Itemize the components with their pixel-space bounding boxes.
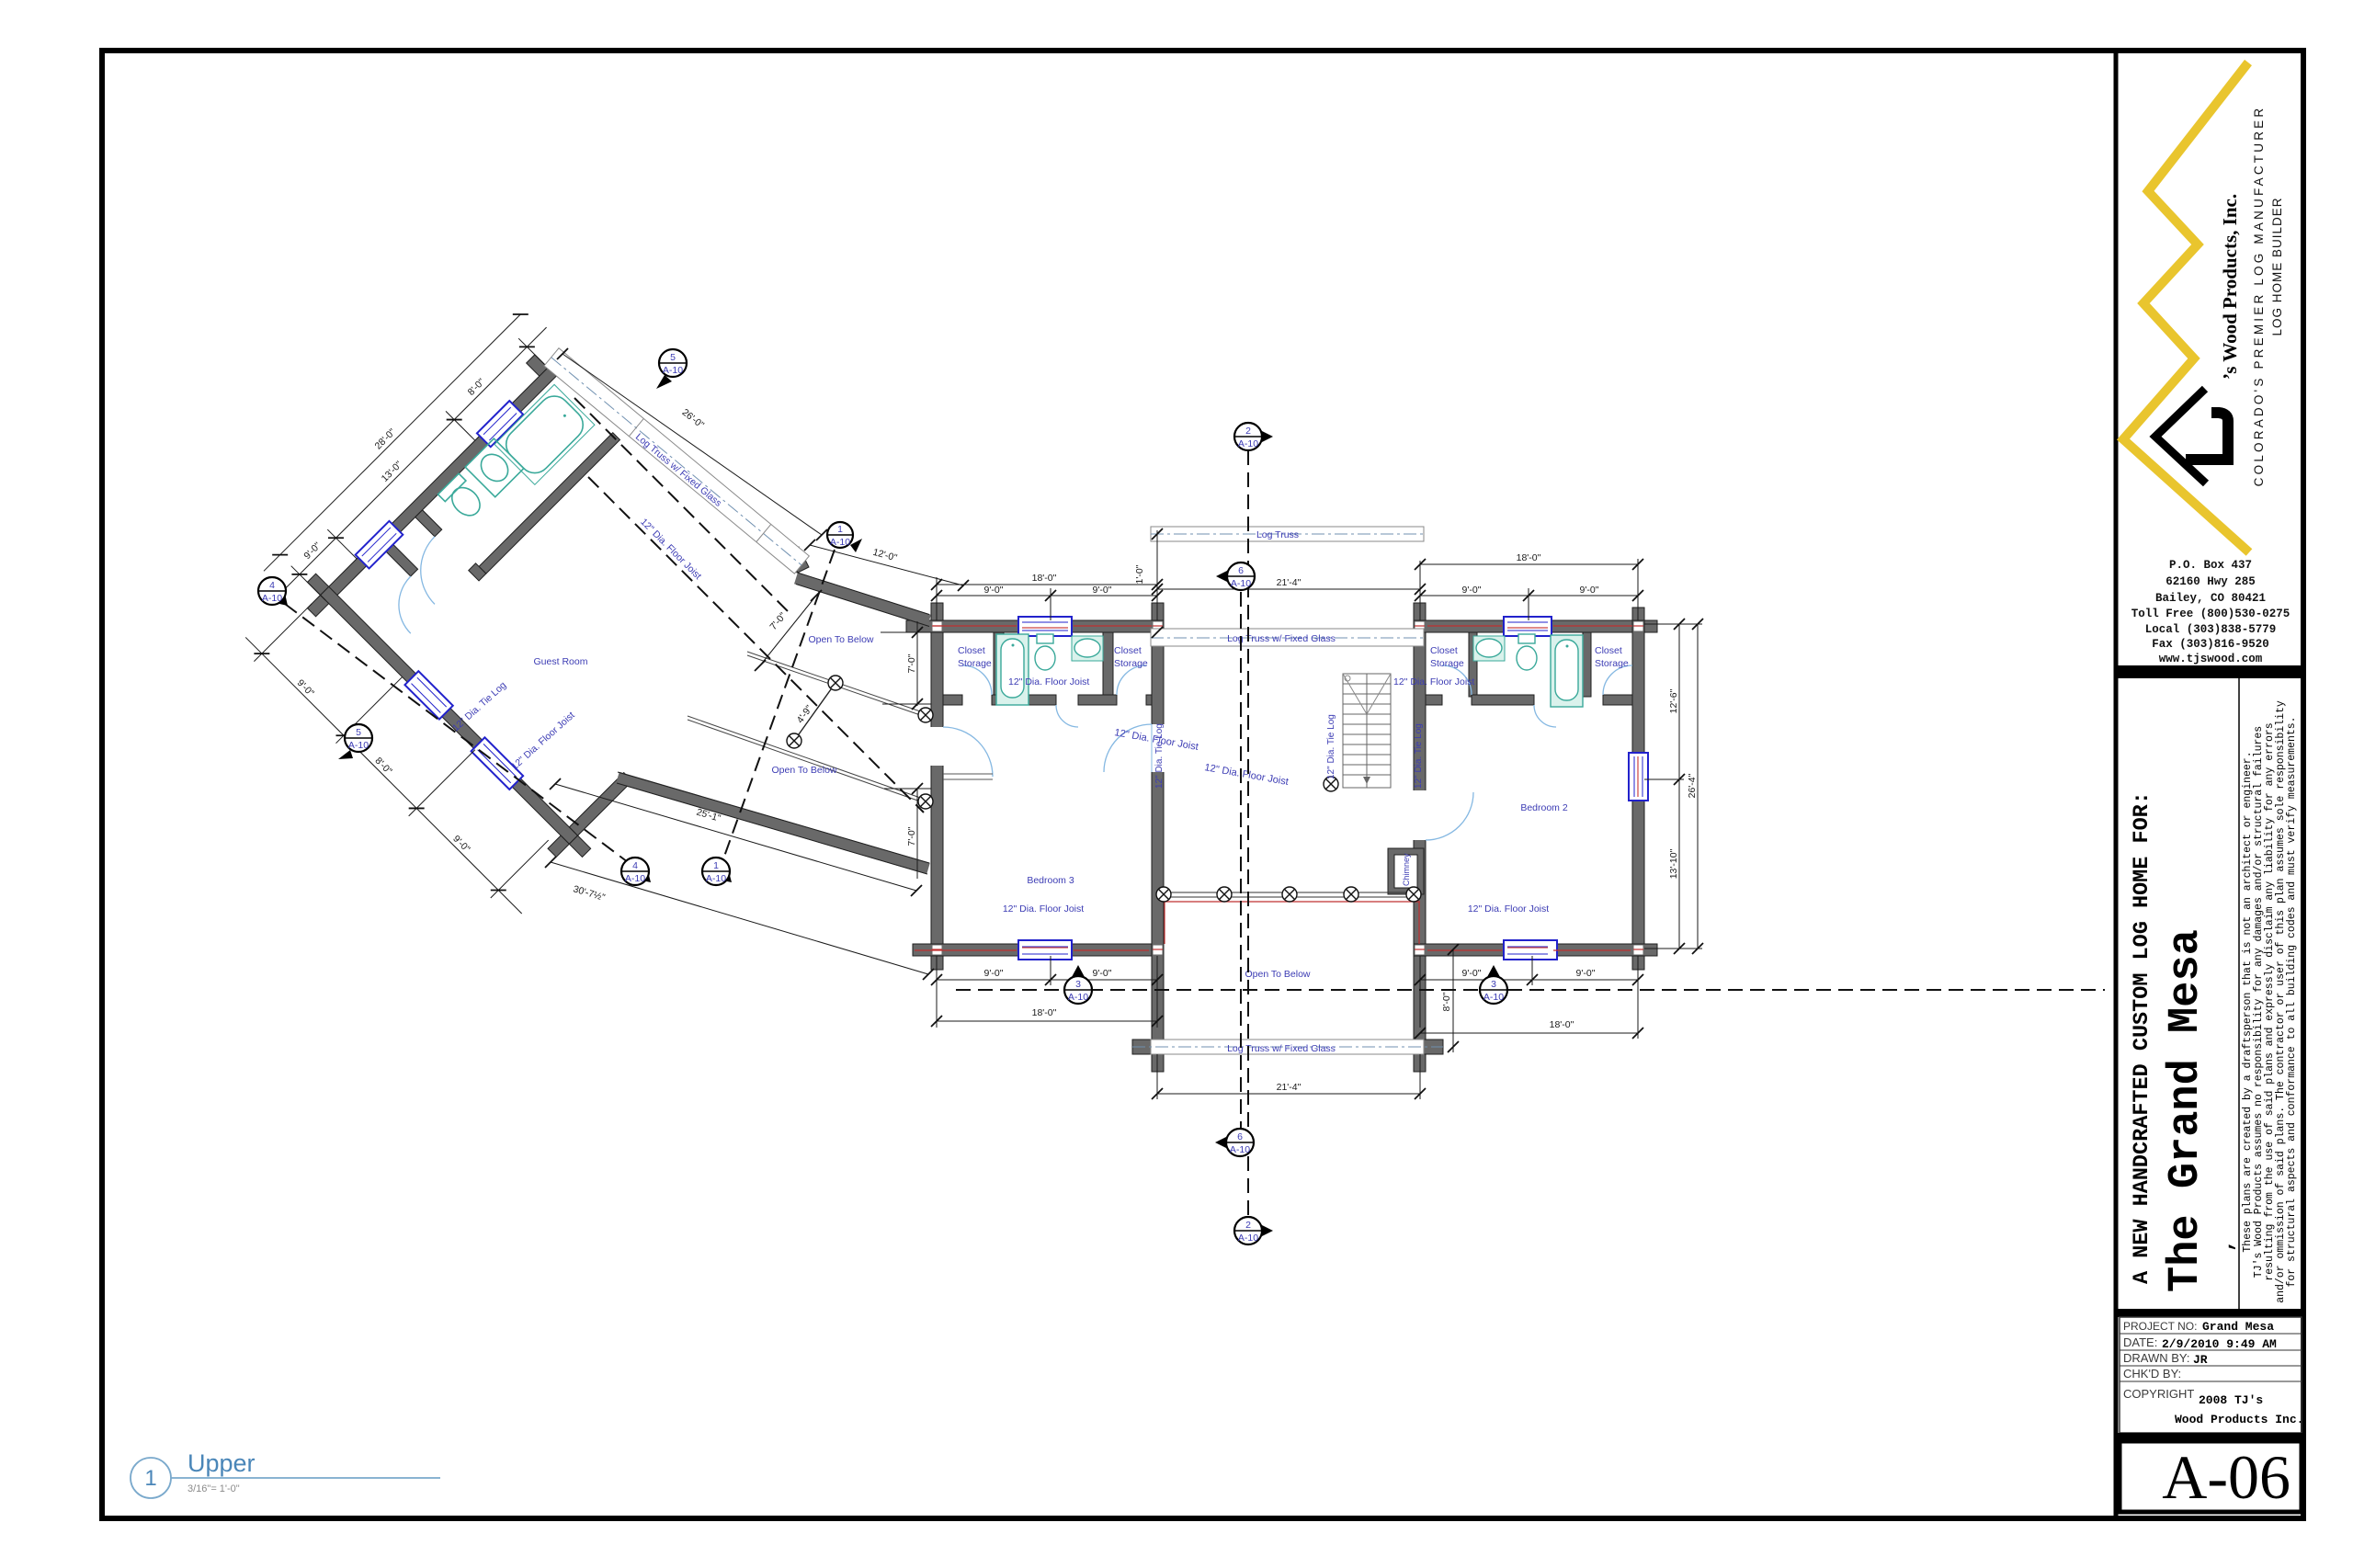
- svg-text:Bedroom 2: Bedroom 2: [1520, 802, 1568, 813]
- svg-text:2: 2: [1245, 426, 1251, 437]
- svg-text:,: ,: [2215, 1240, 2238, 1252]
- svg-text:2008 TJ's: 2008 TJ's: [2199, 1393, 2263, 1407]
- svg-text:PROJECT NO:: PROJECT NO:: [2123, 1320, 2197, 1333]
- svg-text:Open To Below: Open To Below: [808, 634, 873, 645]
- svg-text:Storage: Storage: [958, 658, 992, 669]
- svg-text:26'-4": 26'-4": [1687, 773, 1698, 798]
- svg-text:A-10: A-10: [1230, 1144, 1250, 1155]
- svg-text:A-10: A-10: [348, 740, 369, 751]
- svg-text:Closet: Closet: [958, 645, 985, 656]
- svg-text:13'-10": 13'-10": [1668, 848, 1679, 879]
- svg-text:’s Wood Products, Inc.: ’s Wood Products, Inc.: [2219, 194, 2241, 380]
- svg-text:6: 6: [1238, 565, 1244, 576]
- svg-text:8'-0": 8'-0": [1441, 992, 1452, 1011]
- svg-text:A-06: A-06: [2162, 1442, 2290, 1512]
- svg-text:62160 Hwy 285: 62160 Hwy 285: [2165, 575, 2256, 588]
- svg-text:Closet: Closet: [1430, 645, 1458, 656]
- svg-text:Closet: Closet: [1114, 645, 1142, 656]
- svg-text:12" Dia. Floor Joist: 12" Dia. Floor Joist: [1008, 676, 1089, 687]
- svg-text:COLORADO'S PREMIER LOG MANUFAC: COLORADO'S PREMIER LOG MANUFACTURER: [2252, 106, 2266, 487]
- svg-text:6: 6: [1237, 1131, 1243, 1142]
- svg-text:21'-4": 21'-4": [1277, 1082, 1302, 1093]
- svg-text:4: 4: [632, 860, 638, 871]
- svg-text:5: 5: [670, 352, 676, 363]
- svg-text:9'-0": 9'-0": [984, 585, 1004, 596]
- svg-text:DATE:: DATE:: [2123, 1335, 2157, 1349]
- svg-text:Closet: Closet: [1595, 645, 1622, 656]
- svg-text:Open To Below: Open To Below: [771, 765, 836, 776]
- svg-text:1: 1: [837, 524, 843, 535]
- svg-text:CHK'D BY:: CHK'D BY:: [2123, 1367, 2181, 1381]
- svg-text:P.O. Box 437: P.O. Box 437: [2169, 559, 2252, 572]
- svg-text:A-10: A-10: [262, 593, 282, 604]
- svg-text:COPYRIGHT: COPYRIGHT: [2123, 1387, 2194, 1401]
- svg-text:9'-0": 9'-0": [1580, 585, 1599, 596]
- svg-text:1: 1: [144, 1466, 156, 1491]
- svg-text:A-10: A-10: [1231, 578, 1251, 589]
- svg-text:9'-0": 9'-0": [1093, 968, 1112, 979]
- svg-text:3: 3: [1075, 979, 1081, 990]
- svg-text:12" Dia. Tie Log: 12" Dia. Tie Log: [1326, 714, 1336, 779]
- svg-text:Storage: Storage: [1114, 658, 1148, 669]
- svg-text:A-10: A-10: [1483, 992, 1504, 1003]
- svg-text:A NEW HANDCRAFTED CUSTOM LOG H: A NEW HANDCRAFTED CUSTOM LOG HOME FOR:: [2130, 791, 2154, 1284]
- svg-text:Bedroom 3: Bedroom 3: [1027, 875, 1074, 886]
- svg-text:The Grand Mesa: The Grand Mesa: [2162, 929, 2211, 1292]
- svg-text:Storage: Storage: [1430, 658, 1464, 669]
- svg-text:2: 2: [1245, 1220, 1251, 1231]
- svg-text:Guest Room: Guest Room: [534, 656, 588, 667]
- svg-text:5: 5: [356, 727, 361, 738]
- svg-text:3/16"= 1'-0": 3/16"= 1'-0": [188, 1483, 240, 1494]
- svg-text:12" Dia. Floor Joist: 12" Dia. Floor Joist: [1003, 903, 1084, 915]
- svg-text:A-10: A-10: [663, 365, 683, 376]
- svg-text:www.tjswood.com: www.tjswood.com: [2159, 653, 2263, 665]
- svg-text:Grand Mesa: Grand Mesa: [2202, 1320, 2274, 1334]
- svg-text:for structural aspects and con: for structural aspects and conformance t…: [2286, 716, 2298, 1287]
- svg-text:A-10: A-10: [625, 873, 645, 884]
- svg-text:Bailey, CO 80421: Bailey, CO 80421: [2155, 592, 2266, 605]
- svg-text:18'-0": 18'-0": [1032, 1007, 1057, 1018]
- svg-text:12" Dia. Floor Joist: 12" Dia. Floor Joist: [1468, 903, 1549, 915]
- svg-text:2/9/2010 9:49 AM: 2/9/2010 9:49 AM: [2162, 1337, 2277, 1351]
- svg-text:Local (303)838-5779: Local (303)838-5779: [2145, 623, 2277, 636]
- svg-text:9'-0": 9'-0": [1093, 585, 1112, 596]
- svg-text:12" Dia. Tie Log: 12" Dia. Tie Log: [1414, 723, 1424, 789]
- svg-text:A-10: A-10: [1238, 1233, 1258, 1244]
- svg-text:LOG HOME BUILDER: LOG HOME BUILDER: [2270, 197, 2284, 335]
- svg-text:18'-0": 18'-0": [1032, 573, 1057, 584]
- svg-text:Storage: Storage: [1595, 658, 1629, 669]
- svg-text:Log Truss w/ Fixed Glass: Log Truss w/ Fixed Glass: [1227, 1043, 1336, 1054]
- svg-text:12'-6": 12'-6": [1668, 688, 1679, 713]
- svg-text:12" Dia. Floor Joist: 12" Dia. Floor Joist: [1393, 676, 1474, 687]
- svg-text:Fax (303)816-9520: Fax (303)816-9520: [2152, 638, 2269, 651]
- svg-text:18'-0": 18'-0": [1550, 1019, 1574, 1030]
- svg-text:9'-0": 9'-0": [1462, 585, 1482, 596]
- svg-text:Log Truss: Log Truss: [1256, 529, 1299, 540]
- svg-text:A-10: A-10: [1068, 992, 1088, 1003]
- svg-text:9'-0": 9'-0": [1576, 968, 1596, 979]
- svg-text:Upper: Upper: [188, 1449, 256, 1477]
- svg-text:Chimney: Chimney: [1402, 853, 1411, 886]
- svg-text:A-10: A-10: [830, 537, 850, 548]
- svg-text:12" Dia. Tie Log: 12" Dia. Tie Log: [1154, 723, 1165, 789]
- svg-text:DRAWN BY:: DRAWN BY:: [2123, 1351, 2189, 1365]
- svg-text:Open To Below: Open To Below: [1245, 969, 1310, 980]
- svg-text:18'-0": 18'-0": [1517, 552, 1541, 563]
- svg-text:Log Truss w/ Fixed Glass: Log Truss w/ Fixed Glass: [1227, 633, 1336, 644]
- svg-text:21'-4": 21'-4": [1277, 577, 1302, 588]
- svg-text:1: 1: [713, 860, 719, 871]
- svg-text:3: 3: [1491, 979, 1496, 990]
- svg-text:7'-0": 7'-0": [906, 826, 917, 846]
- svg-text:Wood Products Inc.: Wood Products Inc.: [2175, 1413, 2303, 1426]
- svg-text:7'-0": 7'-0": [906, 653, 917, 673]
- svg-text:Toll Free (800)530-0275: Toll Free (800)530-0275: [2131, 608, 2290, 620]
- svg-text:A-10: A-10: [1238, 438, 1258, 449]
- svg-text:9'-0": 9'-0": [984, 968, 1004, 979]
- svg-text:4: 4: [269, 580, 275, 591]
- svg-text:JR: JR: [2193, 1353, 2208, 1367]
- svg-text:9'-0": 9'-0": [1462, 968, 1482, 979]
- svg-text:A-10: A-10: [706, 873, 726, 884]
- svg-text:1'-0": 1'-0": [1134, 564, 1145, 584]
